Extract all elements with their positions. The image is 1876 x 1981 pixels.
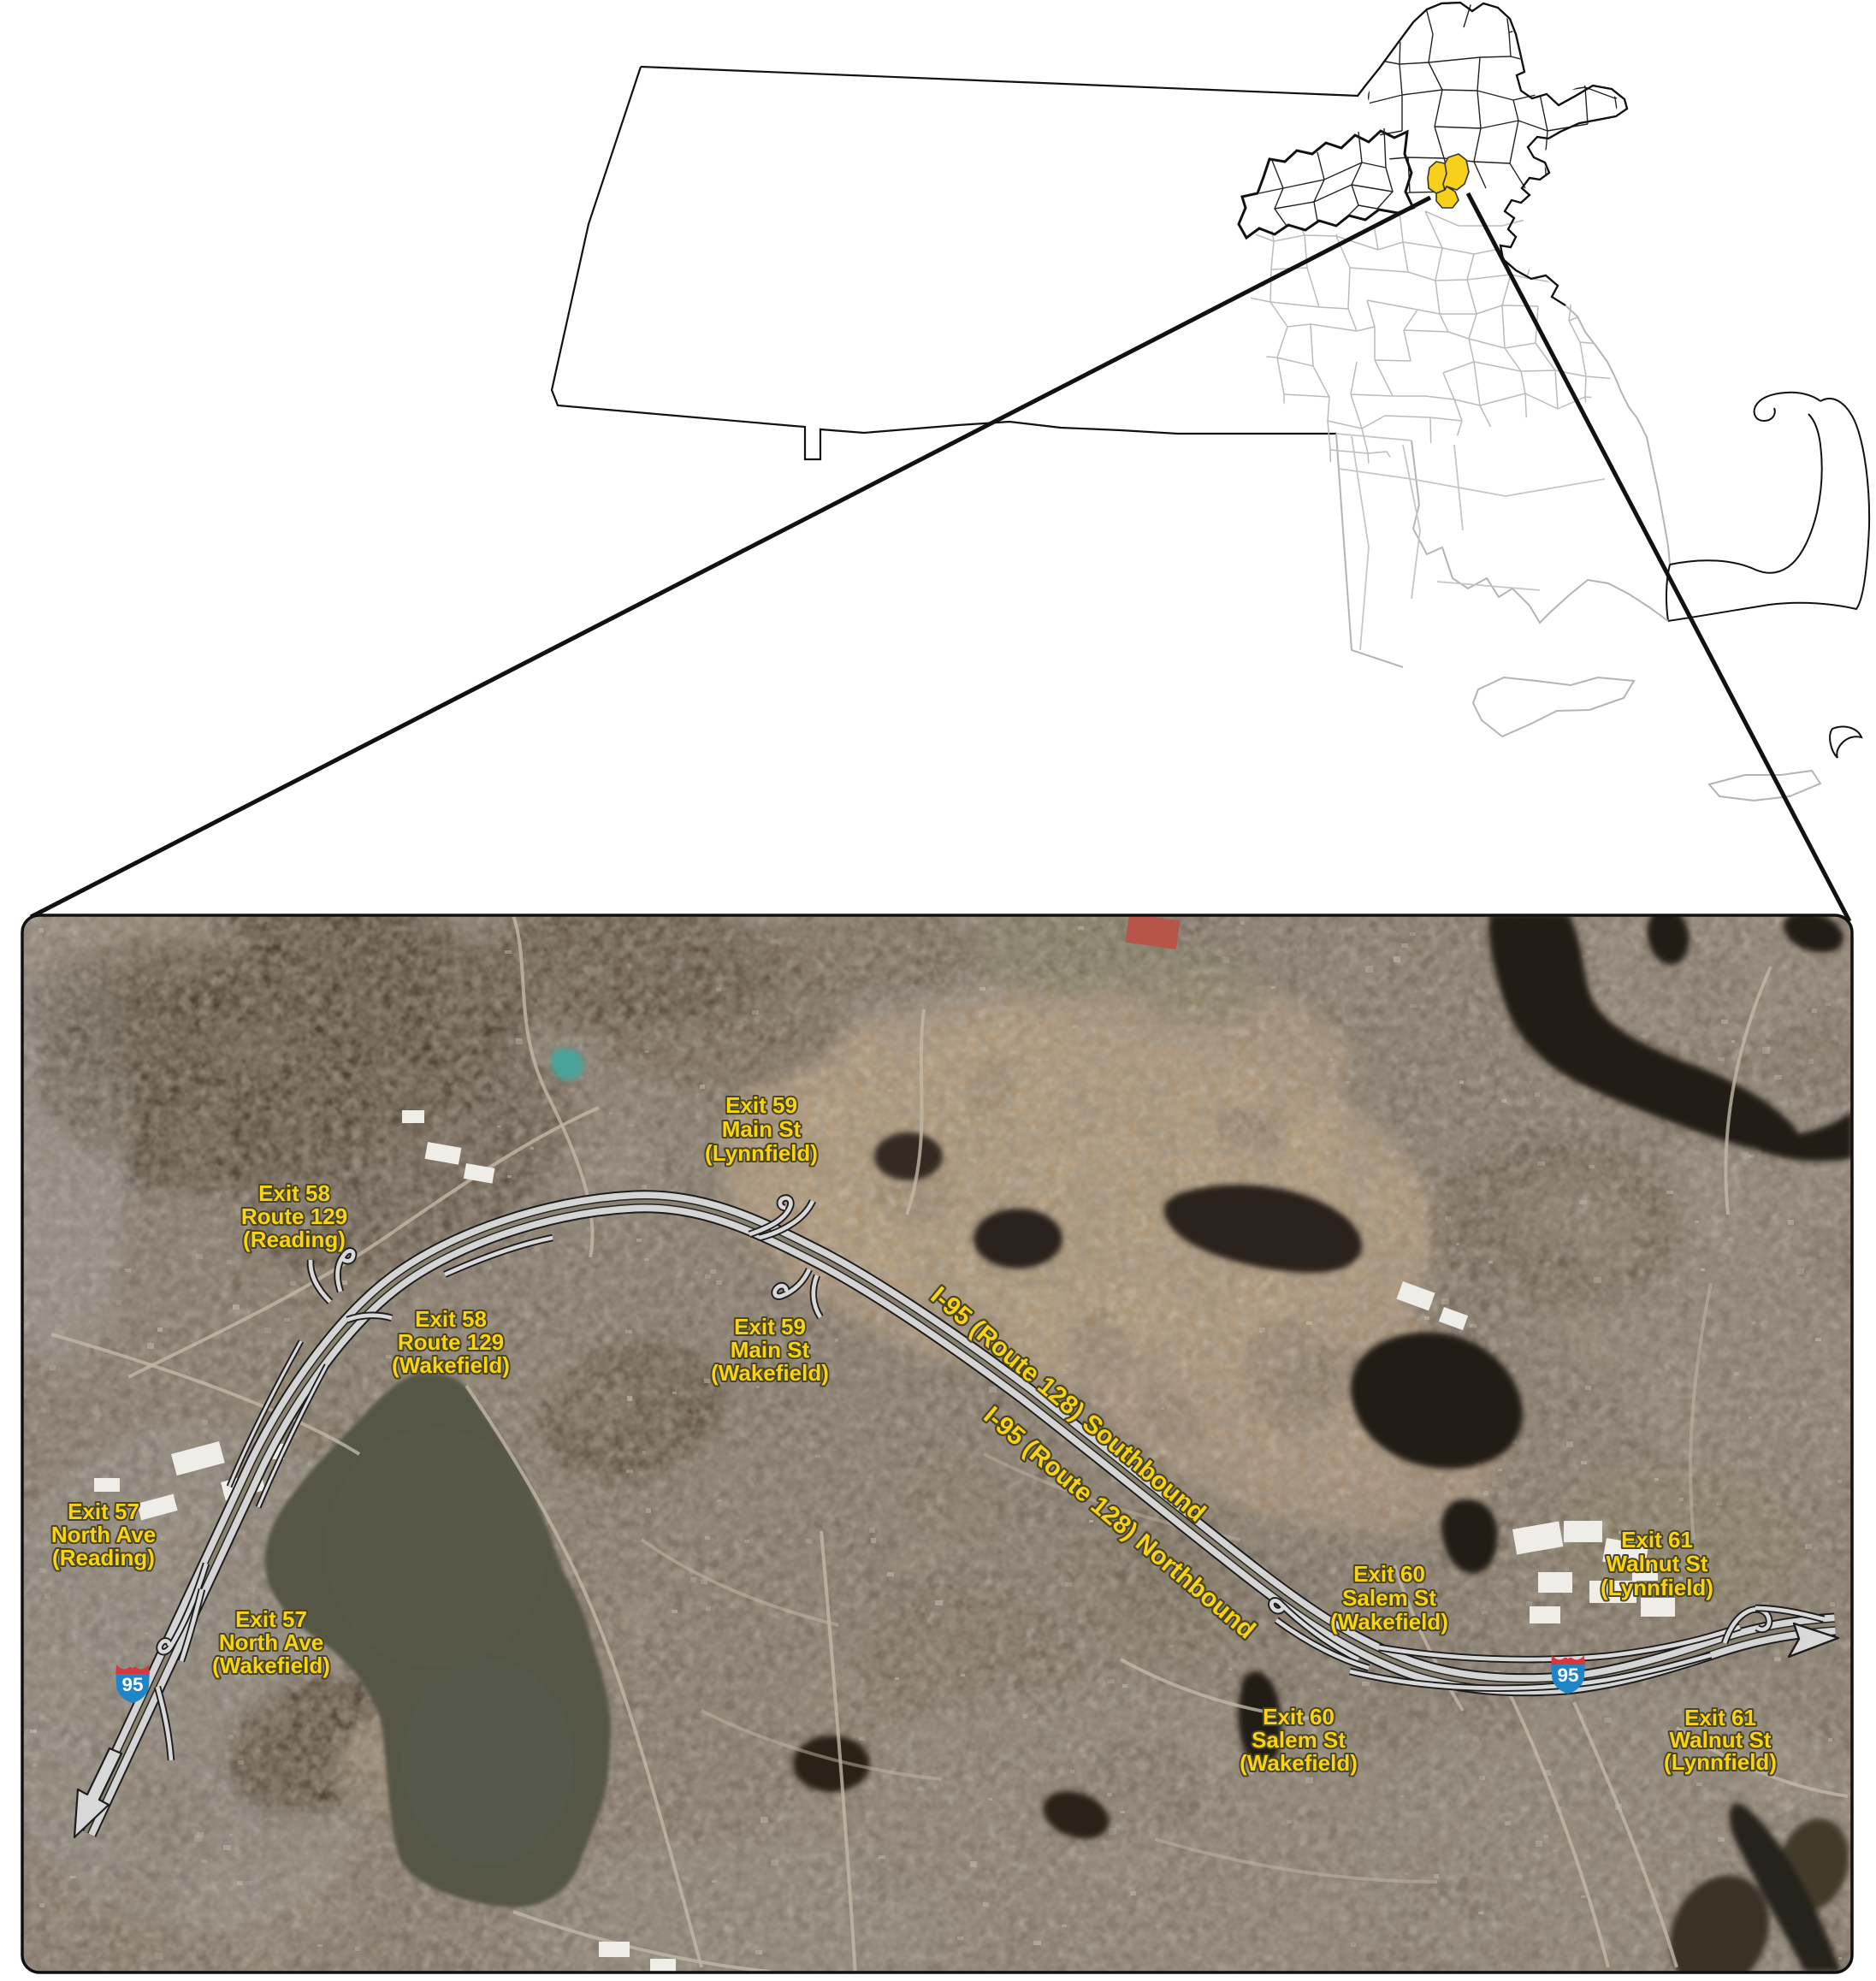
svg-text:Exit 60: Exit 60: [1353, 1561, 1425, 1587]
svg-text:(Lynnfield): (Lynnfield): [1664, 1749, 1777, 1775]
svg-text:Exit 58: Exit 58: [258, 1180, 330, 1206]
svg-text:Route 129: Route 129: [241, 1203, 347, 1229]
svg-text:Salem St: Salem St: [1252, 1727, 1346, 1753]
svg-text:Exit 57: Exit 57: [235, 1606, 307, 1632]
svg-text:(Wakefield): (Wakefield): [711, 1360, 829, 1386]
svg-text:North Ave: North Ave: [51, 1522, 156, 1547]
svg-text:Exit 57: Exit 57: [68, 1499, 139, 1524]
svg-text:North Ave: North Ave: [219, 1629, 323, 1655]
svg-text:Main St: Main St: [731, 1337, 810, 1363]
svg-text:95: 95: [1557, 1665, 1578, 1686]
svg-text:(Wakefield): (Wakefield): [1240, 1750, 1358, 1776]
svg-text:(Lynnfield): (Lynnfield): [1601, 1575, 1713, 1600]
svg-text:(Reading): (Reading): [52, 1545, 155, 1570]
svg-text:95: 95: [121, 1674, 143, 1695]
svg-text:Walnut St: Walnut St: [1607, 1551, 1708, 1576]
svg-text:(Lynnfield): (Lynnfield): [705, 1140, 818, 1166]
svg-text:Main St: Main St: [722, 1116, 802, 1142]
svg-text:Route 129: Route 129: [398, 1329, 504, 1355]
svg-text:Exit 59: Exit 59: [725, 1092, 797, 1118]
svg-text:(Reading): (Reading): [243, 1227, 346, 1252]
svg-text:Exit 61: Exit 61: [1621, 1527, 1693, 1552]
svg-text:Salem St: Salem St: [1342, 1585, 1436, 1611]
svg-text:(Wakefield): (Wakefield): [212, 1653, 330, 1678]
svg-text:Exit 60: Exit 60: [1263, 1704, 1335, 1730]
svg-text:Exit 58: Exit 58: [415, 1306, 487, 1332]
svg-text:Exit 59: Exit 59: [734, 1314, 806, 1339]
svg-text:(Wakefield): (Wakefield): [392, 1352, 510, 1378]
svg-text:(Wakefield): (Wakefield): [1330, 1609, 1448, 1635]
